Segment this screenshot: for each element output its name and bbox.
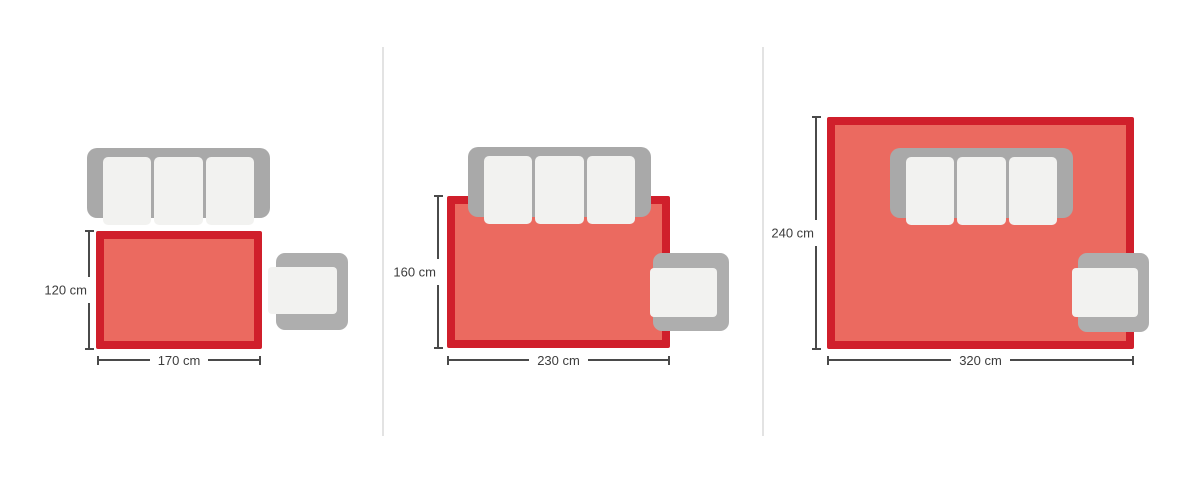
armchair-cushion <box>268 267 337 314</box>
armchair-cushion <box>1072 268 1138 317</box>
dimension-line <box>815 117 817 220</box>
panel-divider <box>382 47 384 436</box>
dimension-line <box>88 231 90 277</box>
sofa-cushions <box>103 157 254 225</box>
dimension-line <box>449 359 529 361</box>
dimension-line <box>208 359 259 361</box>
width-dimension-label: 320 cm <box>951 354 1010 367</box>
sofa-cushion <box>484 156 532 224</box>
sofa-top-view <box>87 148 270 218</box>
sofa-cushion <box>957 157 1005 225</box>
height-dimension-label: 160 cm <box>393 266 436 279</box>
sofa-top-view <box>468 147 651 217</box>
dimension-tick <box>1132 356 1134 365</box>
sofa-cushion <box>1009 157 1057 225</box>
armchair-top-view <box>1078 253 1149 332</box>
width-dimension-label: 170 cm <box>150 354 209 367</box>
width-dimension: 170 cm <box>97 354 261 366</box>
armchair-top-view <box>276 253 348 330</box>
width-dimension-label: 230 cm <box>529 354 588 367</box>
dimension-tick <box>812 348 821 350</box>
dimension-line <box>99 359 150 361</box>
sofa-top-view <box>890 148 1073 218</box>
sofa-cushion <box>587 156 635 224</box>
dimension-line <box>437 196 439 259</box>
dimension-line <box>437 285 439 348</box>
armchair-top-view <box>653 253 729 331</box>
dimension-tick <box>668 356 670 365</box>
dimension-tick <box>434 347 443 349</box>
dimension-tick <box>85 348 94 350</box>
dimension-line <box>829 359 951 361</box>
dimension-line <box>815 246 817 349</box>
sofa-cushions <box>906 157 1057 225</box>
sofa-cushions <box>484 156 635 224</box>
armchair-cushion <box>650 268 717 317</box>
dimension-line <box>88 303 90 349</box>
width-dimension: 230 cm <box>447 354 670 366</box>
height-dimension-label: 120 cm <box>44 284 87 297</box>
sofa-cushion <box>154 157 202 225</box>
rug-top-view <box>96 231 262 349</box>
dimension-line <box>588 359 668 361</box>
sofa-cushion <box>103 157 151 225</box>
panel-divider <box>762 47 764 436</box>
sofa-cushion <box>535 156 583 224</box>
rug-size-guide-diagram: 120 cm 170 cm 160 cm <box>0 0 1200 485</box>
dimension-line <box>1010 359 1132 361</box>
dimension-tick <box>259 356 261 365</box>
sofa-cushion <box>906 157 954 225</box>
height-dimension-label: 240 cm <box>771 227 814 240</box>
width-dimension: 320 cm <box>827 354 1134 366</box>
sofa-cushion <box>206 157 254 225</box>
